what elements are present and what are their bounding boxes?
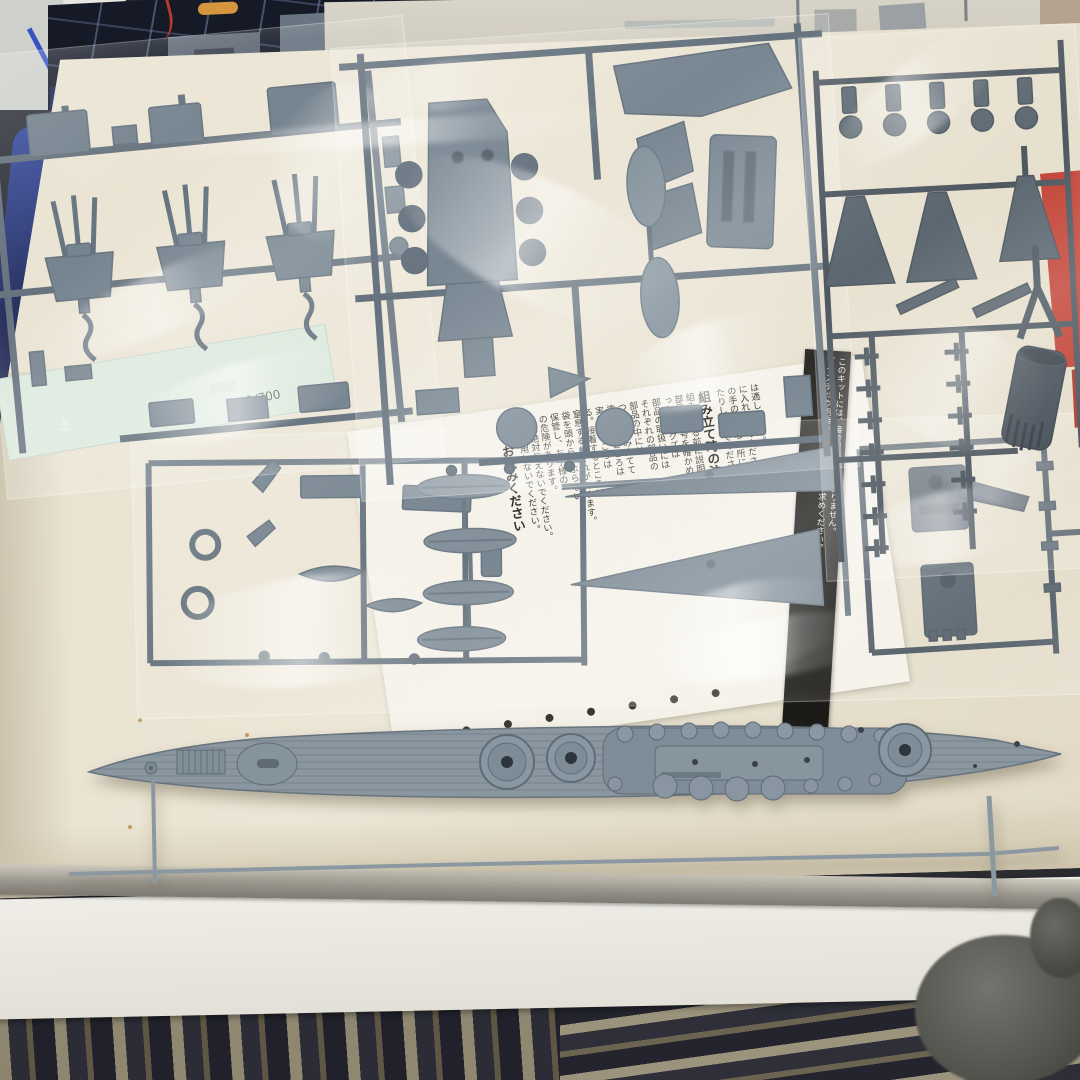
path-shape (69, 854, 987, 874)
circle-shape (899, 744, 911, 756)
lid-ship-mast-art-2 (964, 0, 968, 21)
circle-shape (681, 723, 697, 739)
right-bag-film (798, 23, 1080, 582)
circle-shape (752, 761, 758, 767)
circle-shape (838, 777, 852, 791)
deck-part (85, 722, 1065, 801)
rect-shape (257, 759, 279, 768)
circle-shape (149, 766, 153, 770)
circle-shape (777, 723, 793, 739)
center-bag-film (330, 13, 861, 502)
photo-stage: は適しません。に入れないでください。の手の届かない所にたりしないでください。組み… (0, 0, 1080, 1080)
superstructure-sprue-bag (330, 13, 861, 502)
circle-shape (692, 759, 698, 765)
circle-shape (858, 727, 864, 733)
circle-shape (804, 757, 810, 763)
circle-shape (617, 726, 633, 742)
circle-shape (501, 756, 513, 768)
path-shape (153, 780, 155, 884)
circle-shape (809, 724, 825, 740)
deck-part-svg (55, 688, 1080, 928)
circle-shape (725, 777, 749, 801)
bow-hatch-grid (177, 750, 225, 774)
circle-shape (745, 722, 761, 738)
circle-shape (761, 776, 785, 800)
path-shape (989, 796, 995, 896)
circle-shape (973, 764, 977, 768)
circle-shape (841, 726, 857, 742)
box-art-orange-pill (198, 1, 238, 15)
circle-shape (804, 779, 818, 793)
path-shape (987, 848, 1059, 854)
circle-shape (653, 774, 677, 798)
circle-shape (689, 776, 713, 800)
funnel-sprue-bag (798, 23, 1080, 582)
circle-shape (649, 724, 665, 740)
midship-block (603, 722, 907, 801)
circle-shape (608, 777, 622, 791)
circle-shape (713, 722, 729, 738)
circle-shape (1014, 741, 1020, 747)
circle-shape (565, 752, 577, 764)
circle-shape (869, 774, 881, 786)
